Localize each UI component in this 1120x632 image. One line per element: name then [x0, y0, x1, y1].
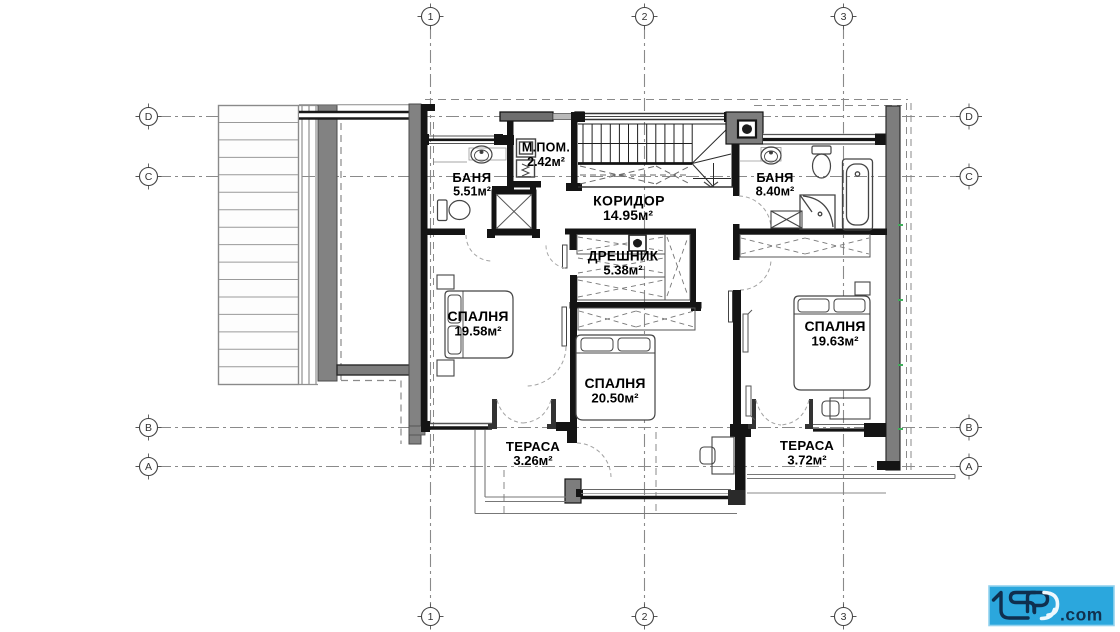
- svg-text:D: D: [145, 111, 153, 123]
- svg-text:20.50м²: 20.50м²: [591, 391, 639, 406]
- svg-text:2.42м²: 2.42м²: [527, 155, 565, 169]
- svg-text:БАНЯ: БАНЯ: [452, 170, 491, 185]
- svg-text:19.63м²: 19.63м²: [811, 334, 859, 349]
- svg-text:2: 2: [642, 611, 648, 623]
- svg-text:8.40м²: 8.40м²: [756, 184, 795, 199]
- svg-text:C: C: [145, 171, 153, 183]
- svg-text:5.38м²: 5.38м²: [603, 263, 643, 278]
- svg-text:14.95м²: 14.95м²: [603, 207, 653, 223]
- svg-text:3: 3: [841, 11, 847, 23]
- svg-text:B: B: [145, 422, 152, 434]
- svg-text:СПАЛНЯ: СПАЛНЯ: [804, 318, 865, 334]
- svg-text:СПАЛНЯ: СПАЛНЯ: [584, 375, 645, 391]
- svg-text:1: 1: [428, 611, 434, 623]
- svg-text:3.26м²: 3.26м²: [513, 453, 553, 468]
- svg-text:D: D: [965, 111, 973, 123]
- svg-text:М.ПОМ.: М.ПОМ.: [522, 141, 570, 155]
- svg-text:B: B: [965, 422, 972, 434]
- svg-text:C: C: [965, 171, 973, 183]
- svg-text:ДРЕШНИК: ДРЕШНИК: [588, 249, 659, 264]
- svg-text:3: 3: [841, 611, 847, 623]
- svg-text:19.58м²: 19.58м²: [454, 324, 502, 339]
- svg-text:.com: .com: [1060, 605, 1103, 625]
- svg-text:СПАЛНЯ: СПАЛНЯ: [447, 308, 508, 324]
- svg-text:A: A: [965, 461, 972, 473]
- svg-text:3.72м²: 3.72м²: [787, 453, 827, 468]
- svg-text:2: 2: [642, 11, 648, 23]
- svg-text:A: A: [145, 461, 152, 473]
- svg-text:5.51м²: 5.51м²: [453, 185, 491, 199]
- svg-text:ТЕРАСА: ТЕРАСА: [780, 438, 834, 453]
- svg-text:ТЕРАСА: ТЕРАСА: [506, 439, 560, 454]
- svg-text:1: 1: [428, 11, 434, 23]
